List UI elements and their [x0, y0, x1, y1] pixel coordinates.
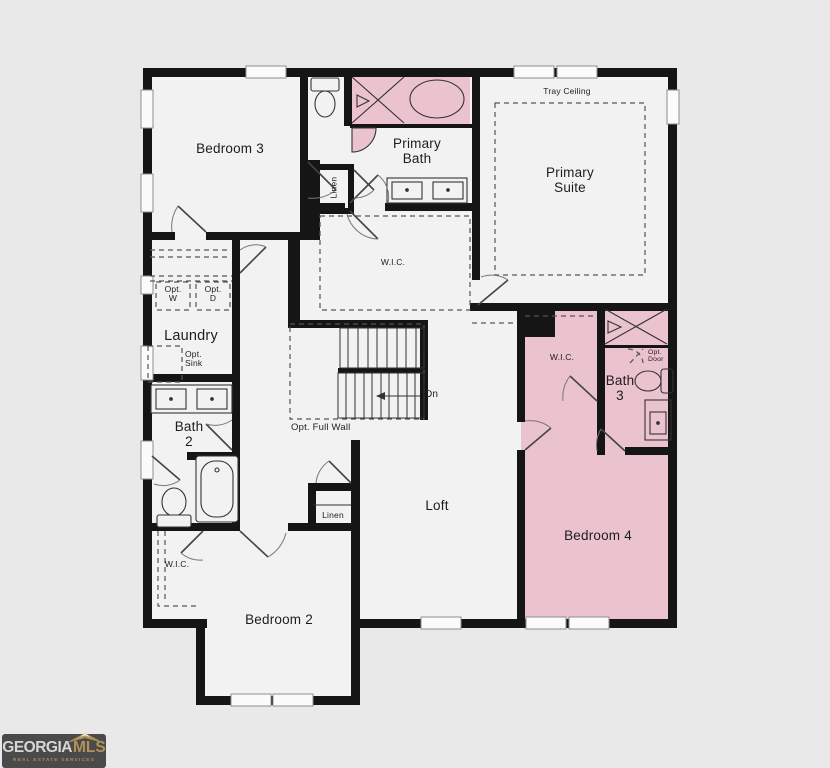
label-opt-door: Opt. Door — [648, 349, 674, 364]
bath2-toilet-bowl — [162, 488, 186, 516]
label-linen-primary: Linen — [329, 167, 338, 209]
label-bath-2: Bath 2 — [159, 420, 219, 449]
label-tray-ceiling: Tray Ceiling — [515, 87, 619, 96]
label-bedroom-4: Bedroom 4 — [532, 529, 664, 544]
floor-plan-page: Bedroom 3 Primary Bath Tray Ceiling Prim… — [0, 0, 830, 768]
primary-vanity — [387, 178, 467, 203]
bath2-toilet-tank — [157, 515, 191, 527]
label-primary-bath: Primary Bath — [380, 137, 454, 166]
label-linen-hall: Linen — [314, 511, 352, 520]
toilet-tank-top — [311, 78, 339, 91]
label-laundry: Laundry — [150, 329, 232, 345]
label-primary-suite: Primary Suite — [528, 166, 612, 195]
label-wic-suite: W.I.C. — [536, 353, 588, 362]
georgia-mls-logo: GEORGIA MLS REAL ESTATE SERVICES — [2, 734, 106, 768]
label-bedroom-3: Bedroom 3 — [165, 142, 295, 157]
label-wic-bed2: W.I.C. — [157, 560, 197, 569]
label-wic-primary: W.I.C. — [365, 258, 421, 267]
label-opt-sink: Opt. Sink — [185, 350, 219, 368]
label-opt-washer: Opt. W — [157, 285, 189, 303]
logo-roof-icon — [66, 733, 104, 743]
floor-plan-drawing — [0, 0, 830, 768]
label-opt-dryer: Opt. D — [197, 285, 229, 303]
label-down: Dn — [425, 390, 451, 401]
logo-brand-primary: GEORGIA — [2, 739, 72, 757]
toilet-bowl-top — [315, 91, 335, 117]
label-bath-3: Bath 3 — [596, 374, 644, 403]
label-bedroom-2: Bedroom 2 — [213, 613, 345, 628]
label-opt-full-wall: Opt. Full Wall — [291, 423, 401, 433]
bath2-tub — [196, 456, 238, 522]
label-loft: Loft — [407, 499, 467, 514]
bath2-vanity — [151, 385, 232, 413]
logo-tagline: REAL ESTATE SERVICES — [13, 758, 95, 763]
